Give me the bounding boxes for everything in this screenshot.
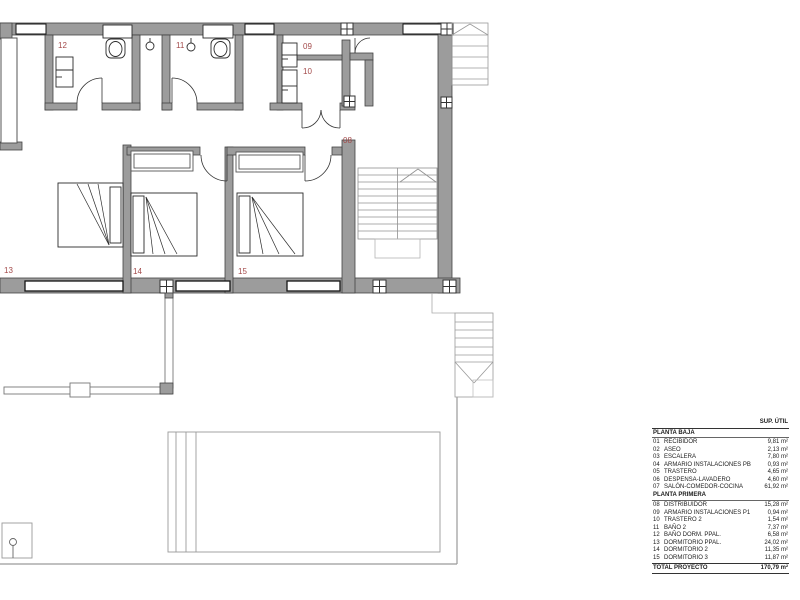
toilet-fixture-bath11: [203, 25, 233, 58]
legend-section-title: PLANTA BAJA: [652, 429, 789, 439]
room-label-13: 13: [4, 266, 13, 275]
terrace-parapet: [4, 293, 173, 397]
legend-row: 04ARMARIO INSTALACIONES PB0,93 m²: [652, 461, 789, 469]
door-bedroom-14: [201, 155, 227, 181]
exterior-stairs-top: [452, 23, 488, 85]
room-label-11: 11: [176, 41, 185, 50]
closet-10: [282, 70, 297, 103]
legend-row: 13DORMITORIO PPAL.24,02 m²: [652, 539, 789, 547]
legend-row: 07SALÓN-COMEDOR-COCINA61,92 m²: [652, 484, 789, 492]
tall-window: [1, 38, 17, 143]
legend-row: 01RECIBIDOR9,81 m²: [652, 439, 789, 447]
toilet-fixture-bath12: [103, 25, 132, 58]
closet-09: [282, 43, 297, 67]
legend-total-value: 170,79 m²: [761, 565, 788, 572]
legend-row: 11BAÑO 27,37 m²: [652, 524, 789, 532]
legend-row: 14DORMITORIO 211,35 m²: [652, 547, 789, 555]
legend-row: 10TRASTERO 21,54 m²: [652, 517, 789, 525]
outdoor-shower-pad: [2, 523, 32, 558]
beds: [58, 183, 303, 256]
door-bath-12: [77, 78, 102, 103]
legend-row: 09ARMARIO INSTALACIONES P10,94 m²: [652, 509, 789, 517]
door-hall: [355, 38, 370, 53]
legend-body: PLANTA BAJA01RECIBIDOR9,81 m²02ASEO2,13 …: [652, 429, 789, 562]
shower-fixture-bath11: [187, 38, 195, 51]
door-bedroom-15: [305, 155, 331, 181]
double-door-storage: [302, 110, 340, 128]
room-label-15: 15: [238, 267, 247, 276]
cabinet-bath12: [56, 57, 73, 87]
room-label-09: 09: [303, 42, 312, 51]
wardrobe-room15: [236, 152, 303, 172]
room-label-12: 12: [58, 41, 67, 50]
bed-room14: [131, 193, 197, 256]
legend-row: 06DESPENSA-LAVADERO4,60 m²: [652, 476, 789, 484]
bed-room13: [58, 183, 123, 247]
storage-closets: [282, 43, 297, 103]
interior-staircase: [358, 168, 437, 258]
shower-fixture-bath12: [146, 38, 154, 50]
door-bath-11: [172, 78, 197, 103]
room-label-14: 14: [133, 267, 142, 276]
legend-section-title: PLANTA PRIMERA: [652, 491, 789, 501]
legend-table: SUP. ÚTIL PLANTA BAJA01RECIBIDOR9,81 m²0…: [652, 418, 789, 574]
legend-row: 12BAÑO DORM. PPAL.6,58 m²: [652, 532, 789, 540]
bed-room15: [237, 193, 303, 256]
legend-row: 03ESCALERA7,80 m²: [652, 454, 789, 462]
legend-row: 02ASEO2,13 m²: [652, 446, 789, 454]
legend-row: 08DISTRIBUIDOR15,28 m²: [652, 502, 789, 510]
legend-total-row: TOTAL PROYECTO 170,79 m²: [652, 563, 789, 575]
wardrobes: [131, 151, 303, 172]
wardrobe-room14: [131, 151, 193, 171]
legend-row: 05TRASTERO4,65 m²: [652, 469, 789, 477]
legend-header: SUP. ÚTIL: [652, 418, 789, 429]
room-label-08: 08: [343, 136, 352, 145]
legend-row: 15DORMITORIO 311,87 m²: [652, 554, 789, 562]
columns: [160, 23, 456, 293]
exterior-stairs-mid: [432, 293, 493, 397]
room-label-10: 10: [303, 67, 312, 76]
pool: [168, 432, 440, 552]
legend-total-label: TOTAL PROYECTO: [653, 565, 761, 572]
